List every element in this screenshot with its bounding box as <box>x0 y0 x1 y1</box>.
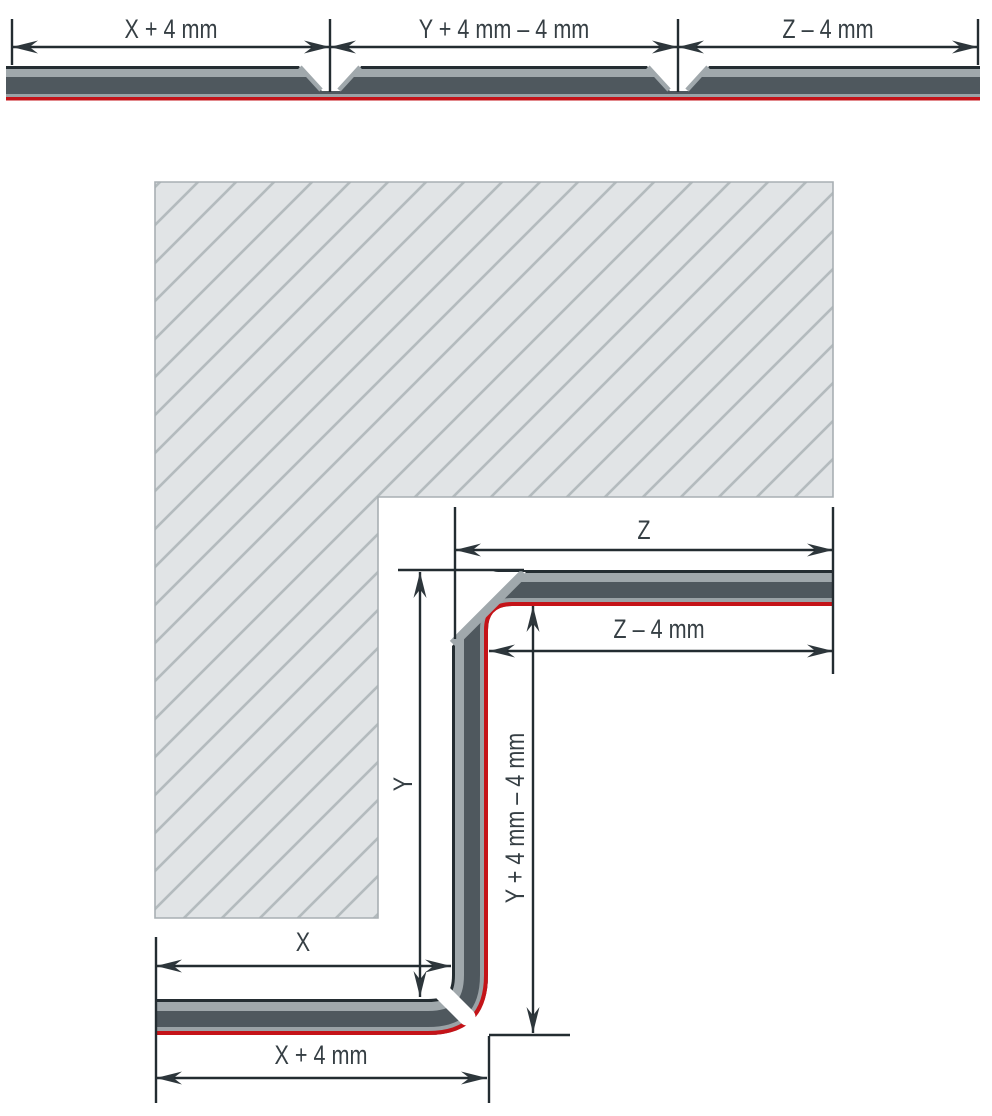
label-strip-z-minus-4: Z – 4 mm <box>782 15 873 45</box>
label-strip-x-plus-4: X + 4 mm <box>125 15 218 45</box>
strip-foil-red-line <box>6 97 980 101</box>
strip-outer-band <box>6 69 980 77</box>
flat-strip-diagram: X + 4 mm Y + 4 mm – 4 mm Z – 4 mm <box>6 15 980 101</box>
corner-profile-diagram: Z Z – 4 mm Y Y + 4 mm – 4 mm X X + 4 mm <box>155 182 833 1103</box>
label-z: Z <box>637 516 650 546</box>
label-strip-y-plus-4-minus-4: Y + 4 mm – 4 mm <box>419 15 590 45</box>
label-x-plus-4: X + 4 mm <box>275 1041 368 1071</box>
label-y: Y <box>389 777 419 791</box>
label-y-plus-4-minus-4: Y + 4 mm – 4 mm <box>501 733 531 904</box>
bending-technique-diagram: X + 4 mm Y + 4 mm – 4 mm Z – 4 mm <box>0 0 992 1116</box>
strip-outer-outline <box>6 66 980 69</box>
diagram-canvas: X + 4 mm Y + 4 mm – 4 mm Z – 4 mm <box>0 0 992 1116</box>
label-x: X <box>296 928 310 958</box>
label-z-minus-4: Z – 4 mm <box>613 615 704 645</box>
strip-core <box>6 77 980 94</box>
strip-inner-band <box>6 94 980 97</box>
